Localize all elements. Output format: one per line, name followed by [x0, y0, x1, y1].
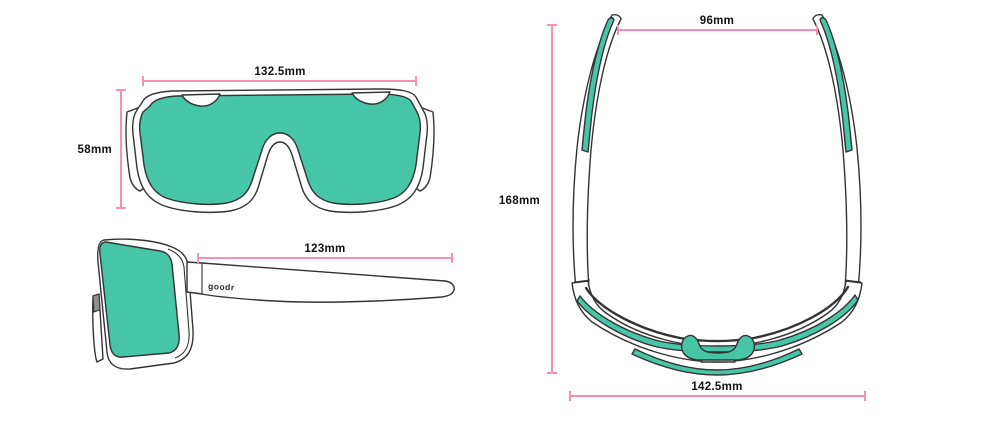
- top-bottom-width-dimension: 142.5mm: [570, 381, 865, 401]
- front-width-dimension: 132.5mm: [143, 66, 416, 86]
- front-lens: [140, 94, 421, 204]
- top-width-label: 96mm: [700, 15, 734, 27]
- front-height-label: 58mm: [78, 144, 112, 156]
- side-frame-sliver-cap: [93, 294, 100, 312]
- side-temple-dimension: 123mm: [198, 243, 452, 263]
- side-lens: [100, 242, 179, 357]
- diagram-svg: 132.5mm 58mm goodr 123mm: [0, 0, 1000, 437]
- front-view-drawing: [126, 89, 434, 212]
- top-length-dimension-line: [547, 25, 557, 373]
- sunglasses-dimensions-diagram: 132.5mm 58mm goodr 123mm: [0, 0, 1000, 437]
- top-length-label: 168mm: [499, 195, 540, 207]
- side-temple-label: 123mm: [304, 243, 345, 255]
- goodr-logo: goodr: [208, 281, 235, 292]
- top-length-dimension: 168mm: [499, 25, 557, 373]
- front-height-dimension-line: [116, 90, 126, 208]
- front-width-label: 132.5mm: [254, 66, 305, 78]
- front-height-dimension: 58mm: [78, 90, 126, 208]
- top-bottom-width-label: 142.5mm: [691, 381, 742, 393]
- top-view-drawing: [572, 15, 862, 375]
- top-width-dimension: 96mm: [618, 15, 817, 35]
